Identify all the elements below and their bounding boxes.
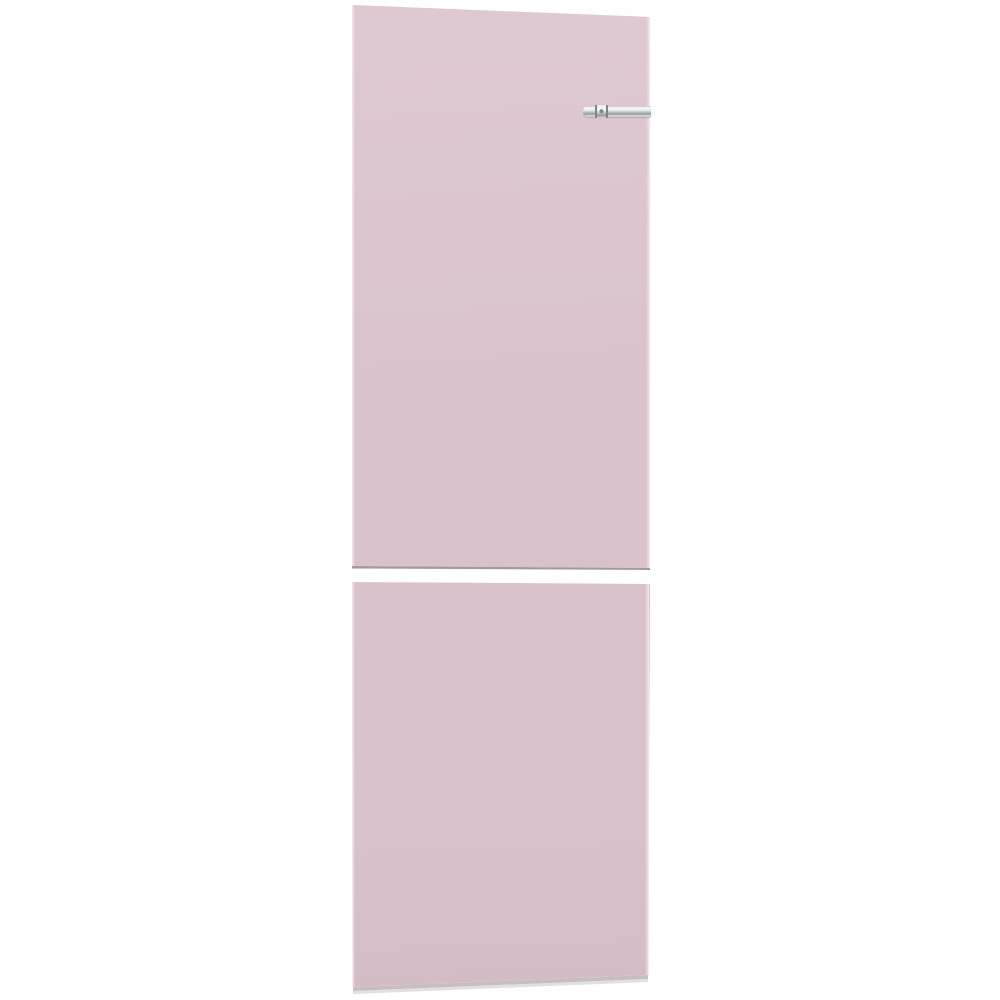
upper-panel-right-edge-sheen <box>646 17 650 568</box>
upper-panel-left-edge-sheen <box>352 5 355 567</box>
handle-strip <box>583 106 651 117</box>
lower-panel-left-edge-sheen <box>352 582 355 987</box>
lower-panel-right-edge-sheen <box>645 584 649 975</box>
product-photo <box>0 0 1000 1000</box>
handle-bracket <box>595 105 608 118</box>
